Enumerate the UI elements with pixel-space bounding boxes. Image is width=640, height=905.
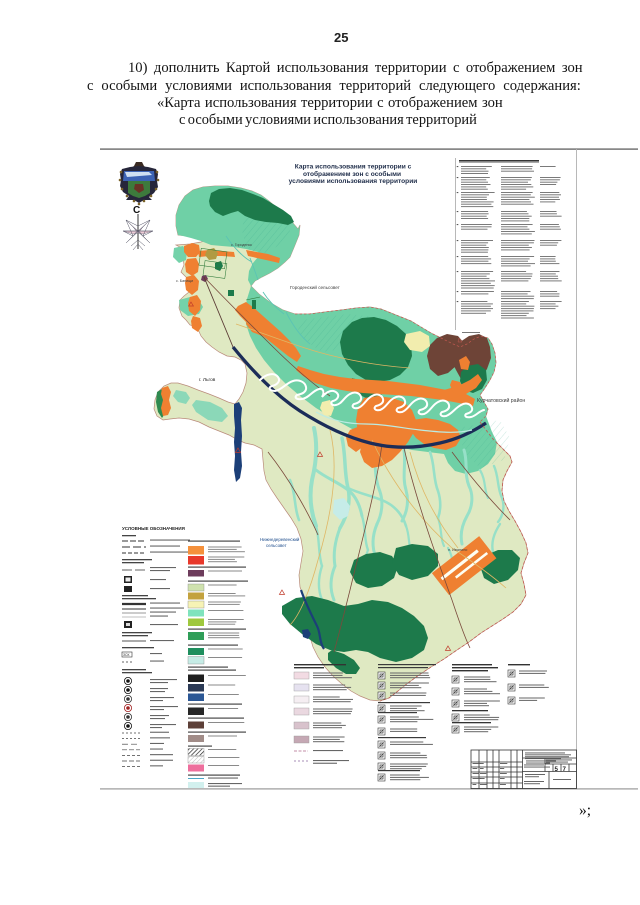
svg-text:Нижнедеревенский: Нижнедеревенский xyxy=(260,537,300,542)
svg-text:Карта использования территории: Карта использования территории с xyxy=(295,164,412,171)
svg-text:УСЛОВНЫЕ ОБОЗНАЧЕНИЯ: УСЛОВНЫЕ ОБОЗНАЧЕНИЯ xyxy=(122,526,185,531)
svg-text:г. Льгов: г. Льгов xyxy=(199,377,216,383)
svg-text:с. Городенск: с. Городенск xyxy=(231,243,252,247)
svg-text:Курчатовский район: Курчатовский район xyxy=(477,397,525,404)
svg-text:ЗСК: ЗСК xyxy=(123,653,129,657)
svg-text:сельсовет: сельсовет xyxy=(266,543,287,548)
svg-text:7: 7 xyxy=(563,766,567,773)
svg-text:отображением зон с особыми: отображением зон с особыми xyxy=(303,170,401,178)
svg-text:условиями использования террит: условиями использования территории xyxy=(289,178,418,185)
svg-text:С: С xyxy=(133,205,140,216)
svg-text:с. Банищи: с. Банищи xyxy=(176,279,193,283)
svg-text:Городенский сельсовет: Городенский сельсовет xyxy=(290,284,341,290)
svg-text:5: 5 xyxy=(555,766,559,773)
svg-text:п. Иванино: п. Иванино xyxy=(448,548,467,552)
